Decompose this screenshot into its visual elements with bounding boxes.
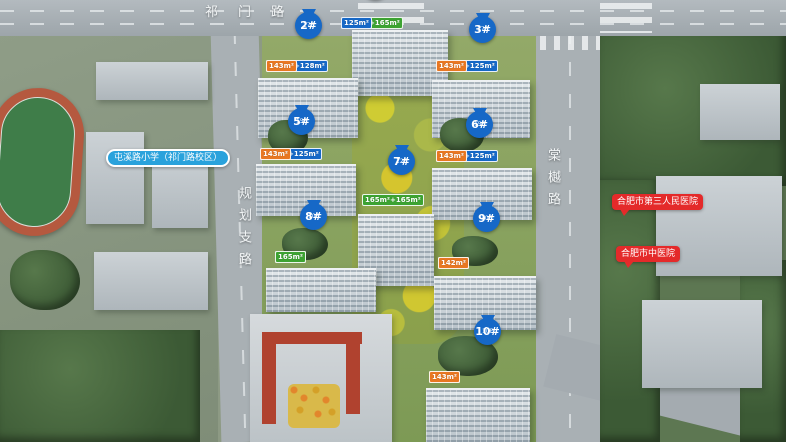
pin-floors-label: 10F bbox=[482, 328, 493, 335]
area-tag: 165m²+165m² bbox=[362, 194, 424, 206]
pin-tail bbox=[302, 9, 316, 22]
area-tag: 143m² bbox=[266, 60, 297, 72]
facility-label-hefei-third-peoples-hospital[interactable]: 合肥市第三人民医院 bbox=[612, 194, 703, 210]
pin-tail bbox=[476, 13, 490, 26]
road-name-guihua-branch-road: 规划支路 bbox=[234, 186, 253, 274]
area-tag: 143m² bbox=[260, 148, 291, 160]
area-tag: 165m² bbox=[275, 251, 306, 263]
facility-label-hefei-tcm-hospital[interactable]: 合肥市中医院 bbox=[616, 246, 680, 262]
area-tag: 142m² bbox=[438, 257, 469, 269]
road-name-tangyue-road: 棠樾路 bbox=[543, 148, 562, 214]
site-plan-rendering: 祁门路规划支路棠樾路 125m²165m²+165m²125m²143m²128… bbox=[0, 0, 786, 442]
road-name-qimen-road: 祁门路 bbox=[205, 1, 304, 20]
facility-labels-layer: 屯溪路小学（祁门路校区）合肥市第三人民医院合肥市中医院 bbox=[0, 0, 786, 442]
pin-floors-label: 10F bbox=[308, 213, 319, 220]
pin-floors-label: 15F bbox=[474, 121, 485, 128]
pin-floors-label: 17F bbox=[303, 22, 314, 29]
area-tag: 143m² bbox=[436, 60, 467, 72]
area-tag: 143m² bbox=[429, 371, 460, 383]
pin-floors-label: 10F bbox=[481, 215, 492, 222]
pin-floors-label: 17F bbox=[477, 26, 488, 33]
pin-tail bbox=[481, 315, 495, 328]
pin-tail bbox=[307, 200, 321, 213]
pin-tail bbox=[295, 105, 309, 118]
pin-floors-label: 15F bbox=[296, 118, 307, 125]
area-tag: 125m² bbox=[341, 17, 372, 29]
pin-tail bbox=[480, 202, 494, 215]
facility-label-tunxi-road-primary-school[interactable]: 屯溪路小学（祁门路校区） bbox=[106, 149, 230, 167]
pin-tail bbox=[395, 145, 409, 158]
pin-floors-label: 12F bbox=[396, 158, 407, 165]
area-tag: 143m² bbox=[436, 150, 467, 162]
pin-tail bbox=[473, 108, 487, 121]
